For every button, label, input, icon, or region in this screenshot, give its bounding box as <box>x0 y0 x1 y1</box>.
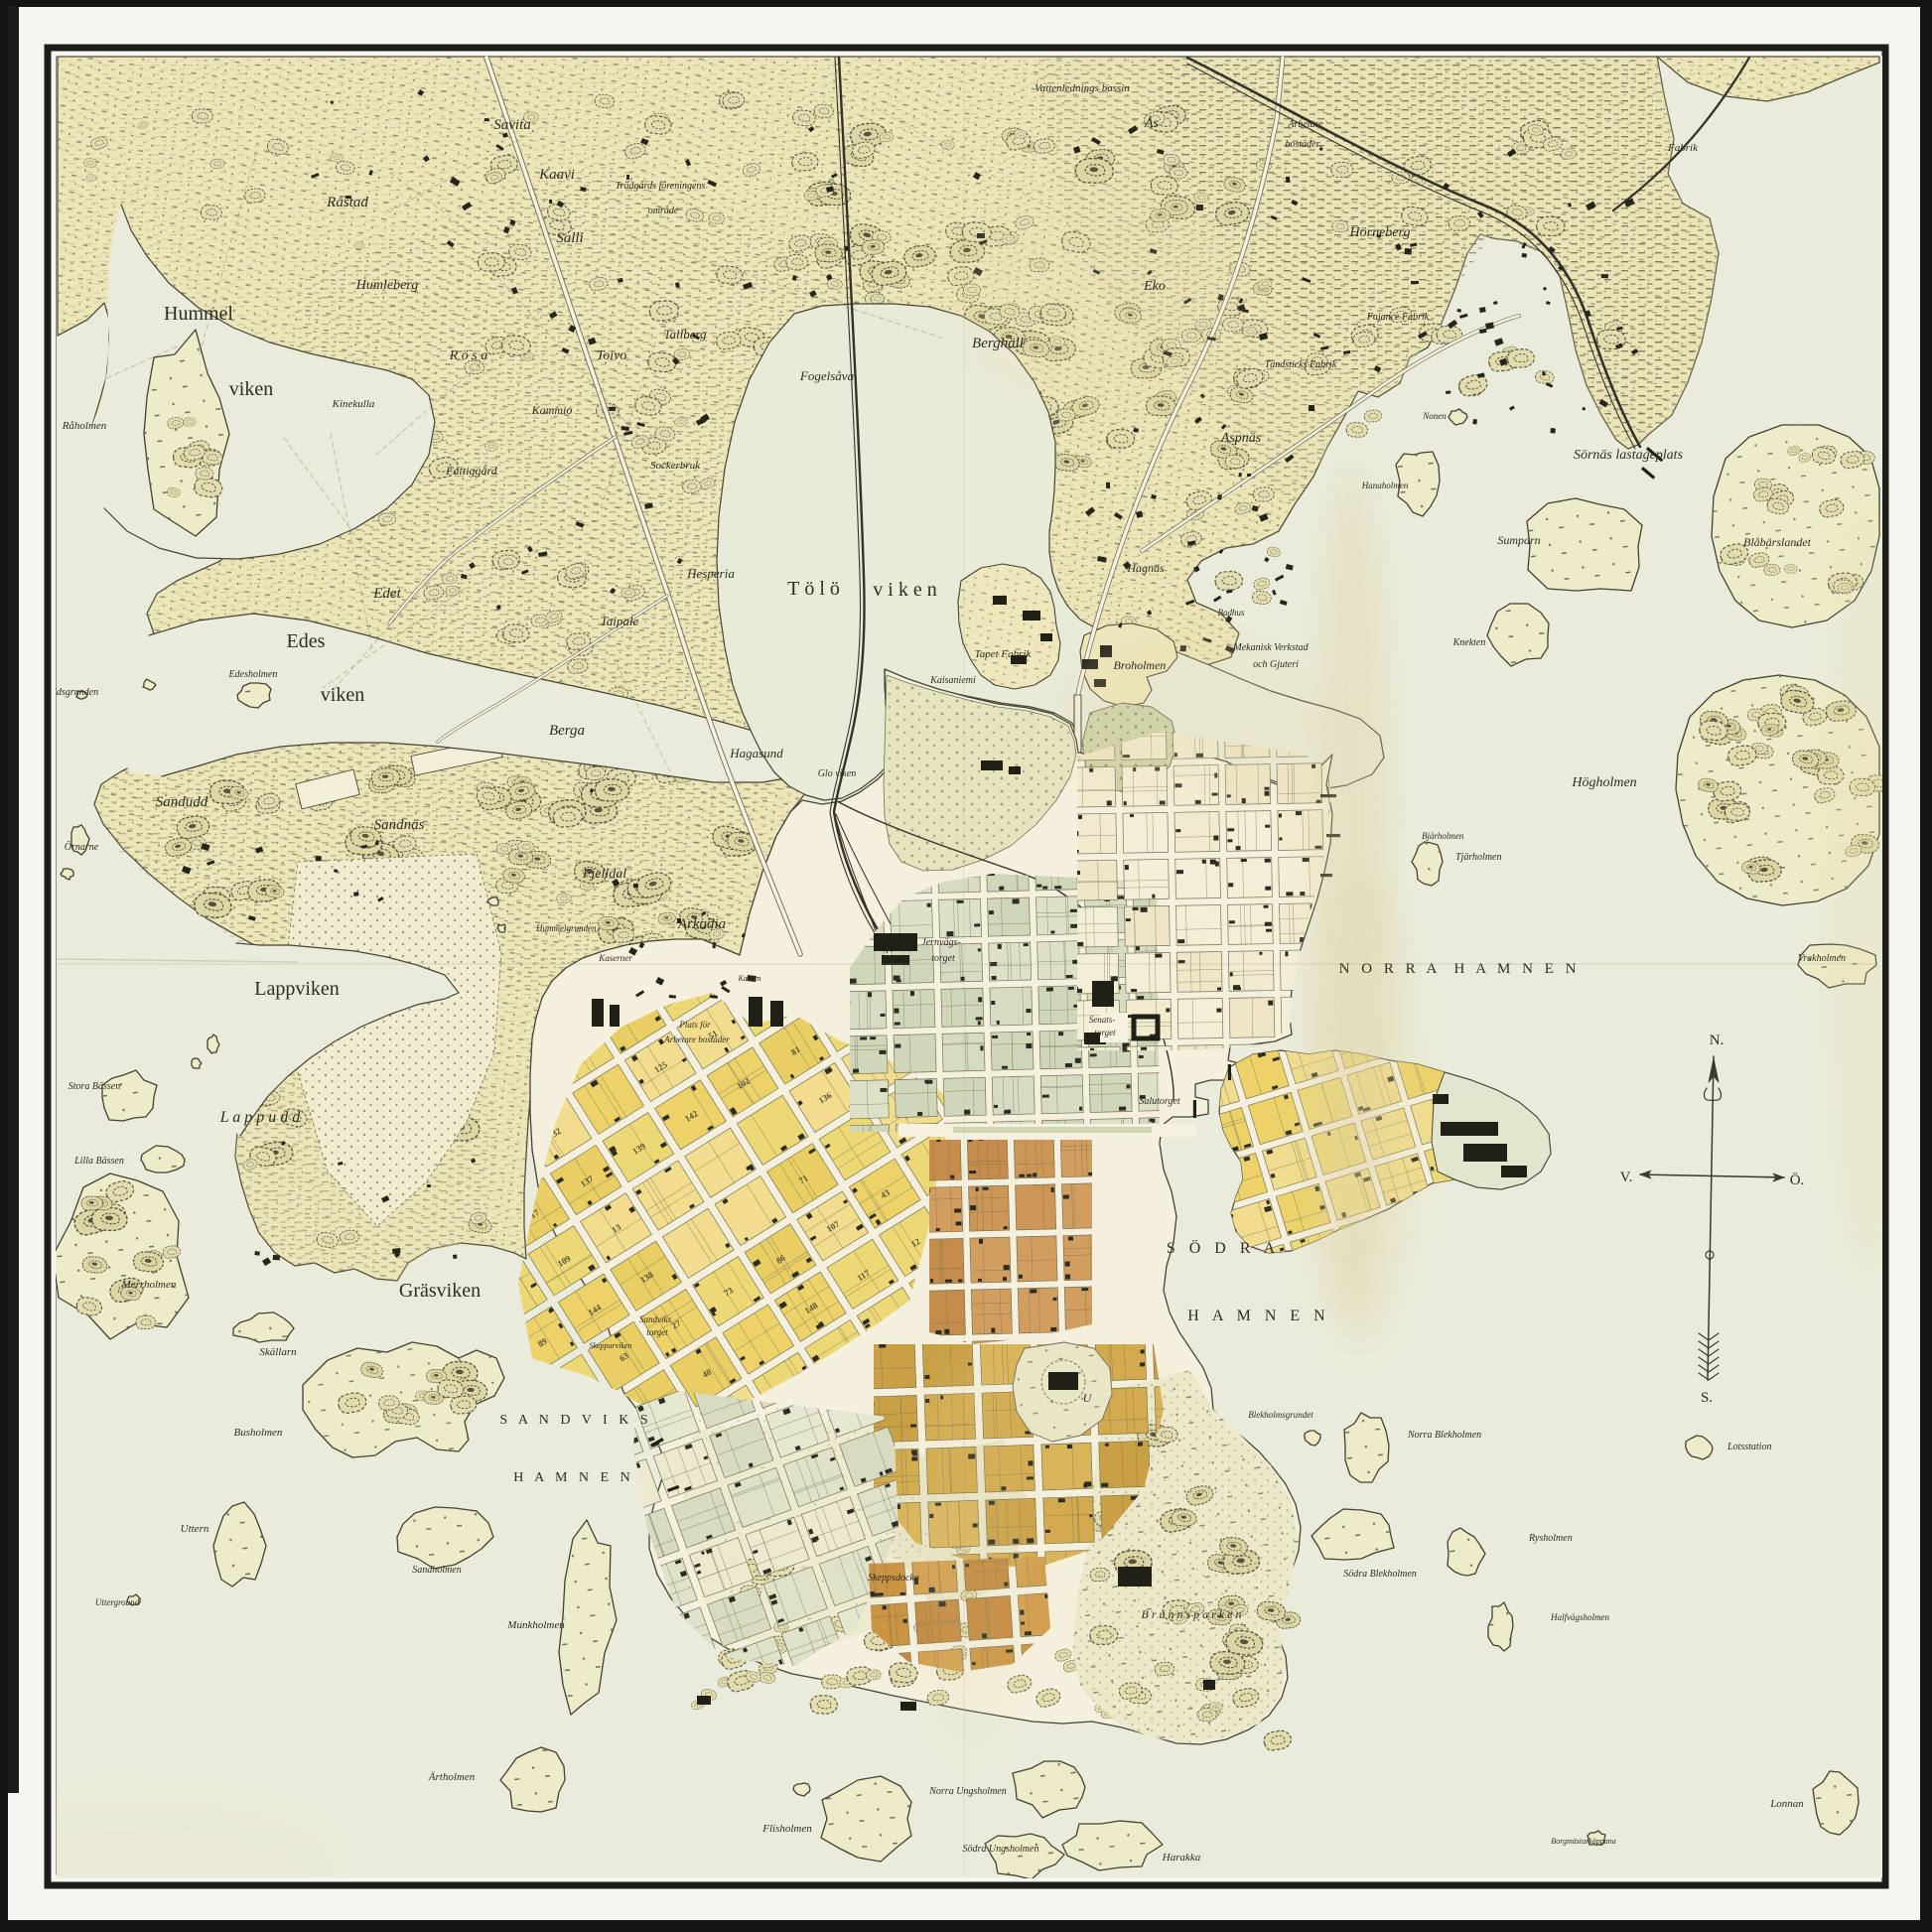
svg-text:Munkholmen: Munkholmen <box>506 1619 565 1631</box>
svg-text:Kaavi: Kaavi <box>538 167 575 183</box>
svg-text:Edesholmen: Edesholmen <box>228 669 278 680</box>
svg-text:Hanaholmen: Hanaholmen <box>1361 481 1409 490</box>
svg-text:Norra Ungsholmen: Norra Ungsholmen <box>928 1786 1007 1797</box>
svg-text:Ö.: Ö. <box>1790 1172 1805 1188</box>
svg-text:V.: V. <box>1620 1170 1633 1185</box>
svg-text:Tölö: Tölö <box>787 578 845 600</box>
svg-text:Sockerbruk: Sockerbruk <box>650 460 701 472</box>
svg-text:Kinekulla: Kinekulla <box>332 398 375 410</box>
svg-text:U: U <box>1083 1391 1093 1405</box>
svg-text:Fajance Fabrik: Fajance Fabrik <box>1366 312 1430 323</box>
svg-text:Aspnäs: Aspnäs <box>1220 431 1262 446</box>
svg-text:Borgmästarkäppana: Borgmästarkäppana <box>1551 1837 1615 1846</box>
svg-text:Hummel: Hummel <box>164 303 233 325</box>
svg-text:Blåbärslandet: Blåbärslandet <box>1743 535 1812 549</box>
svg-text:Kaisaniemi: Kaisaniemi <box>929 675 976 686</box>
svg-text:Lotsstation: Lotsstation <box>1726 1442 1771 1452</box>
svg-text:torget: torget <box>931 953 955 964</box>
svg-text:torget: torget <box>646 1327 668 1337</box>
svg-text:Utterground: Utterground <box>95 1597 140 1607</box>
svg-text:Lappviken: Lappviken <box>254 978 340 1000</box>
svg-text:Lonnan: Lonnan <box>1769 1798 1804 1810</box>
svg-text:viken: viken <box>321 684 364 706</box>
svg-text:S A N D V I K S: S A N D V I K S <box>499 1413 651 1428</box>
svg-text:Savita: Savita <box>493 117 531 133</box>
svg-text:Skeppsdocka: Skeppsdocka <box>868 1573 919 1584</box>
svg-text:Sörnäs lastageplats: Sörnäs lastageplats <box>1574 448 1684 463</box>
svg-text:Sandnäs: Sandnäs <box>374 817 425 833</box>
svg-text:Hesperia: Hesperia <box>686 566 735 581</box>
svg-text:Salli: Salli <box>556 230 584 246</box>
svg-text:Edes: Edes <box>287 630 326 652</box>
svg-text:Stora Bässen: Stora Bässen <box>69 1081 121 1092</box>
svg-text:torget: torget <box>1094 1028 1116 1037</box>
svg-text:Broholmen: Broholmen <box>1114 658 1167 672</box>
svg-text:Ås: Ås <box>1144 115 1160 131</box>
svg-text:Salutorget: Salutorget <box>1139 1096 1180 1107</box>
svg-text:Bjärholmen: Bjärholmen <box>1422 831 1464 841</box>
svg-text:Arkadia: Arkadia <box>677 916 726 932</box>
svg-text:Sandviks: Sandviks <box>639 1314 671 1324</box>
svg-text:Tjärholmen: Tjärholmen <box>1455 852 1502 863</box>
svg-text:Hörneberg: Hörneberg <box>1349 225 1411 240</box>
svg-text:Badhus: Badhus <box>1218 608 1245 618</box>
svg-text:Tapet Fabrik: Tapet Fabrik <box>975 648 1033 660</box>
svg-text:H A M N E N: H A M N E N <box>513 1470 633 1485</box>
svg-text:Kasern: Kasern <box>737 974 760 983</box>
svg-text:område: område <box>648 206 679 216</box>
svg-text:Plats för: Plats för <box>678 1020 711 1030</box>
svg-text:Fattiggård: Fattiggård <box>445 464 498 478</box>
svg-text:Fogelsåva: Fogelsåva <box>799 368 855 383</box>
svg-text:Sandudd: Sandudd <box>156 794 208 810</box>
svg-text:Norra Blekholmen: Norra Blekholmen <box>1407 1430 1481 1441</box>
svg-text:Glo viken: Glo viken <box>818 768 857 779</box>
svg-text:L a p p u d d: L a p p u d d <box>219 1109 302 1126</box>
svg-text:viken: viken <box>873 579 941 601</box>
svg-text:Sumparn: Sumparn <box>1497 533 1540 547</box>
svg-text:Örnarne: Örnarne <box>65 841 99 853</box>
svg-text:Sandholmen: Sandholmen <box>412 1565 461 1576</box>
svg-text:Edet: Edet <box>372 586 401 602</box>
svg-text:Hummelgrunden: Hummelgrunden <box>535 923 597 933</box>
svg-text:viken: viken <box>229 378 273 400</box>
svg-text:Rysholmen: Rysholmen <box>1528 1533 1573 1544</box>
svg-text:Knekten: Knekten <box>1452 637 1486 648</box>
svg-text:Södra Blekholmen: Södra Blekholmen <box>1343 1569 1417 1580</box>
svg-text:S Ö D R A: S Ö D R A <box>1167 1239 1280 1257</box>
svg-text:Vattenlednings bassin: Vattenlednings bassin <box>1035 82 1130 94</box>
svg-text:Tallberg: Tallberg <box>663 327 707 342</box>
svg-text:Harakka: Harakka <box>1162 1852 1201 1863</box>
svg-text:Vrakholmen: Vrakholmen <box>1798 953 1846 964</box>
svg-text:N O R R A: N O R R A <box>1339 961 1442 977</box>
svg-text:Högholmen: Högholmen <box>1571 775 1636 790</box>
svg-text:Lilla Bässen: Lilla Bässen <box>73 1156 124 1167</box>
svg-text:Arbetare: Arbetare <box>1287 119 1323 130</box>
svg-text:och Gjuteri: och Gjuteri <box>1253 659 1299 670</box>
svg-text:Toivo: Toivo <box>597 348 627 363</box>
svg-text:Kaserner: Kaserner <box>598 953 632 963</box>
svg-text:Råholmen: Råholmen <box>62 420 107 432</box>
svg-text:Södra Ungsholmen: Södra Ungsholmen <box>963 1844 1039 1855</box>
svg-text:B r u n n s p a r k e n: B r u n n s p a r k e n <box>1142 1607 1242 1621</box>
svg-text:Flisholmen: Flisholmen <box>761 1823 812 1835</box>
svg-text:Berga: Berga <box>549 723 585 739</box>
svg-text:Eko: Eko <box>1143 279 1166 294</box>
svg-text:R ö s a: R ö s a <box>449 348 488 363</box>
svg-text:Nonen: Nonen <box>1422 411 1447 421</box>
svg-text:Edsgrunden: Edsgrunden <box>50 687 98 698</box>
svg-text:Taipale: Taipale <box>601 614 639 628</box>
svg-text:Busholmen: Busholmen <box>234 1427 283 1439</box>
svg-text:Hagasund: Hagasund <box>729 746 783 760</box>
svg-text:Mekanisk Verkstad: Mekanisk Verkstad <box>1232 642 1309 653</box>
svg-text:Fabrik: Fabrik <box>1667 142 1699 154</box>
svg-text:H A M N E N: H A M N E N <box>1454 961 1581 977</box>
svg-text:Uttern: Uttern <box>181 1523 209 1535</box>
svg-text:Trädgårds föreningens: Trädgårds föreningens <box>616 181 706 192</box>
svg-text:N.: N. <box>1710 1033 1725 1048</box>
svg-text:Skepparviken: Skepparviken <box>589 1341 631 1350</box>
svg-text:Berghäll: Berghäll <box>972 336 1024 351</box>
svg-text:Fjelldal: Fjelldal <box>582 867 626 882</box>
svg-text:Arbetare bostäder: Arbetare bostäder <box>663 1035 730 1044</box>
svg-text:Senats-: Senats- <box>1089 1015 1116 1025</box>
svg-text:Halfvägsholmen: Halfvägsholmen <box>1550 1612 1609 1622</box>
svg-text:Skällarn: Skällarn <box>259 1346 297 1358</box>
svg-text:bostäder: bostäder <box>1286 139 1320 150</box>
svg-text:Råstad: Råstad <box>326 195 368 210</box>
svg-text:Blekholmsgrundet: Blekholmsgrundet <box>1248 1410 1313 1420</box>
svg-text:Kammio: Kammio <box>531 403 573 417</box>
svg-text:Tändsticks Fabrik: Tändsticks Fabrik <box>1265 359 1337 370</box>
svg-text:Merrholmen: Merrholmen <box>121 1279 177 1291</box>
svg-text:Gräsviken: Gräsviken <box>399 1280 481 1302</box>
svg-text:Ärtholmen: Ärtholmen <box>428 1771 476 1783</box>
svg-text:Hagnäs: Hagnäs <box>1126 561 1165 575</box>
svg-text:Jernvägs-: Jernvägs- <box>921 937 960 948</box>
svg-text:S.: S. <box>1701 1390 1713 1406</box>
svg-text:H A M N E N: H A M N E N <box>1187 1308 1329 1324</box>
svg-text:Humleberg: Humleberg <box>355 278 418 293</box>
